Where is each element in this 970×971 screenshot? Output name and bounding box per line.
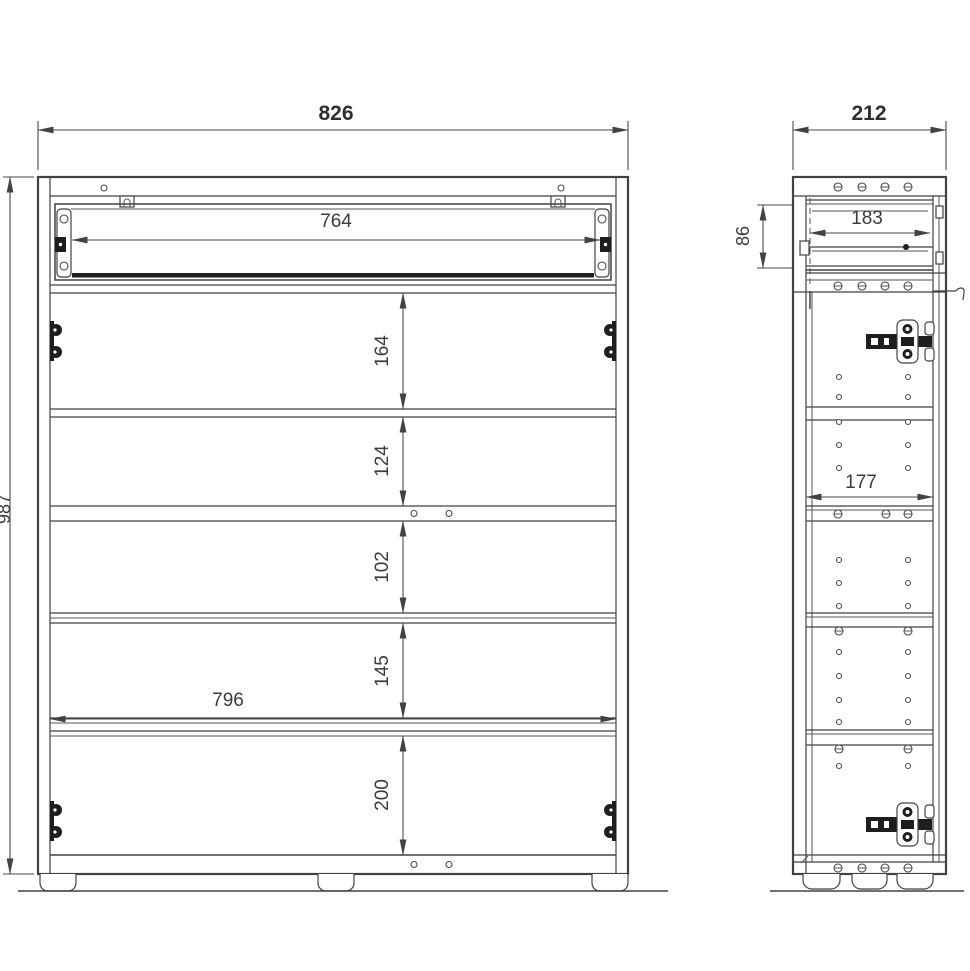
front-carcass-outline (38, 177, 628, 874)
hinge-icon (604, 801, 616, 841)
hinge-icon (866, 803, 934, 846)
dim-label-124: 124 (372, 445, 393, 477)
side-carcass-outline (793, 177, 946, 874)
dim-label-212: 212 (851, 102, 886, 125)
dim-label-796: 796 (212, 690, 244, 711)
dimension-overall-width: 826 (38, 102, 628, 170)
hinge-icon (50, 321, 62, 361)
top-rail-screws (834, 183, 912, 191)
dimension-shelf-spacing-200: 200 (372, 736, 403, 855)
front-shelf-lines (50, 285, 616, 868)
dimension-interior-width: 796 (50, 690, 616, 719)
dimension-shelf-spacing-164: 164 (372, 293, 403, 409)
dim-label-200: 200 (372, 779, 393, 811)
dim-label-177: 177 (845, 472, 877, 493)
dimension-overall-height: 987 (0, 177, 34, 874)
door-edge-hook (810, 288, 964, 309)
dimension-drawer-depth: 183 (810, 208, 930, 233)
dim-label-86: 86 (733, 226, 753, 246)
dimension-shelf-spacing-102: 102 (372, 521, 403, 613)
hinge-icon (50, 801, 62, 841)
shelf-pin-holes (837, 375, 911, 769)
dimension-shelf-spacing-145: 145 (372, 623, 403, 718)
dim-label-145: 145 (372, 655, 393, 687)
dim-label-102: 102 (372, 551, 393, 583)
drawing-svg: 826 987 764 796 164 124 (0, 0, 970, 971)
hinge-icon (866, 320, 934, 363)
cabinet-dimension-drawing: 826 987 764 796 164 124 (0, 0, 970, 971)
front-view: 826 987 764 796 164 124 (0, 102, 668, 891)
dimension-drawer-width: 764 (72, 211, 600, 240)
dimension-drawer-front-height: 86 (733, 205, 792, 268)
hinge-icon (604, 321, 616, 361)
side-feet (770, 874, 964, 891)
dim-label-826: 826 (318, 102, 353, 125)
front-feet (18, 874, 668, 891)
dimension-shelf-spacing-124: 124 (372, 417, 403, 506)
dim-label-987: 987 (0, 494, 14, 524)
dimension-overall-depth: 212 (793, 102, 946, 170)
dim-label-183: 183 (851, 208, 883, 229)
dimension-shelf-depth: 177 (806, 472, 933, 497)
dim-label-164: 164 (372, 335, 393, 367)
side-view: 212 86 183 177 (733, 102, 964, 891)
dim-label-764: 764 (320, 211, 352, 232)
